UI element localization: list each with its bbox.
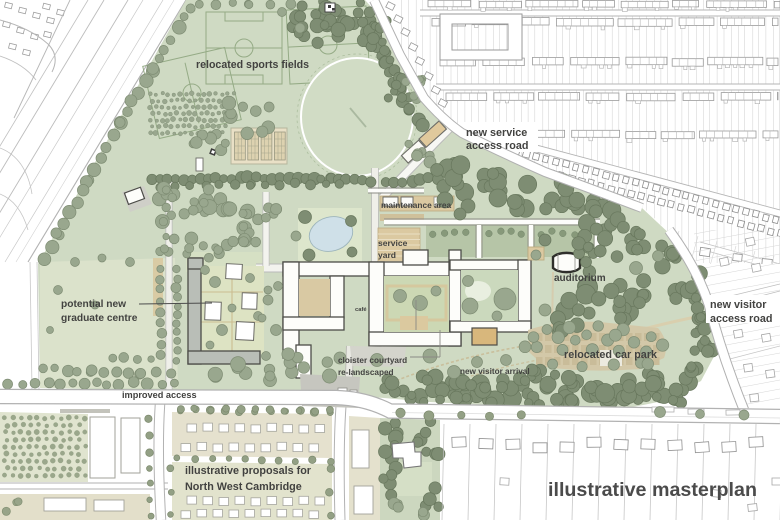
svg-text:illustrative masterplan: illustrative masterplan bbox=[548, 479, 757, 501]
svg-text:illustrative proposals for: illustrative proposals for bbox=[185, 465, 312, 477]
svg-text:potential new: potential new bbox=[61, 299, 126, 310]
svg-text:new visitor arrival: new visitor arrival bbox=[460, 367, 530, 376]
svg-text:relocated car park: relocated car park bbox=[564, 349, 658, 361]
svg-text:yard: yard bbox=[378, 250, 396, 260]
svg-text:maintenance area: maintenance area bbox=[381, 200, 451, 210]
svg-text:auditorium: auditorium bbox=[554, 273, 606, 284]
svg-text:café: café bbox=[355, 307, 367, 313]
svg-text:improved access: improved access bbox=[122, 390, 197, 400]
svg-text:graduate centre: graduate centre bbox=[61, 313, 138, 324]
svg-text:service: service bbox=[378, 238, 408, 248]
svg-text:North West Cambridge: North West Cambridge bbox=[185, 481, 302, 493]
svg-text:new service: new service bbox=[466, 127, 527, 139]
svg-text:cloister courtyard: cloister courtyard bbox=[338, 356, 407, 365]
svg-text:access road: access road bbox=[710, 313, 772, 325]
svg-text:re-landscaped: re-landscaped bbox=[338, 368, 394, 377]
svg-text:access road: access road bbox=[466, 140, 528, 152]
svg-text:relocated sports fields: relocated sports fields bbox=[196, 59, 309, 71]
svg-text:new visitor: new visitor bbox=[710, 299, 767, 311]
